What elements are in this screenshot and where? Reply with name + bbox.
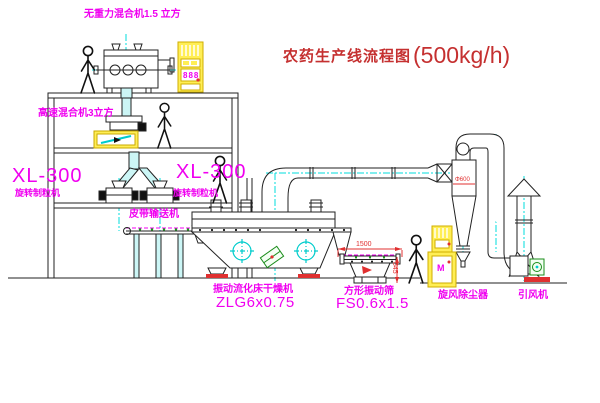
label-granulator-right-model: XL-300	[176, 162, 247, 182]
dim-cyclone-diameter: Φ600	[455, 177, 470, 183]
diagram-canvas: 农药生产线流程图 (500kg/h) 无重力混合机1.5 立方 高速混合机3立方…	[0, 0, 600, 403]
cabinet-right-display: M	[437, 264, 446, 273]
label-granulator-left-model: XL-300	[12, 166, 83, 186]
cabinet-top-display: 888	[183, 72, 199, 80]
dim-sieve-length: 1500	[356, 241, 372, 248]
exhaust-stack	[508, 179, 550, 282]
control-cabinet-right	[428, 226, 456, 287]
fluid-bed-dryer	[192, 200, 351, 278]
exhaust-duct	[262, 164, 452, 212]
diagram-title: 农药生产线流程图 (500kg/h)	[283, 42, 510, 69]
label-sieve-model: FS0.6x1.5	[336, 296, 409, 311]
title-text: 农药生产线流程图	[283, 45, 411, 66]
label-cyclone: 旋风除尘器	[438, 291, 488, 301]
label-belt-conveyor: 皮带输送机	[129, 210, 179, 220]
label-granulator-right-name: 旋转制粒机	[173, 189, 218, 198]
control-cabinet-top	[178, 42, 203, 92]
gravity-mixer	[94, 44, 174, 116]
label-fan: 引风机	[518, 291, 548, 301]
granulator-left	[99, 181, 138, 203]
label-gravity-mixer: 无重力混合机1.5 立方	[84, 10, 181, 20]
label-high-speed-mixer: 高速混合机3立方	[38, 109, 114, 119]
high-speed-mixer	[94, 116, 146, 148]
induced-draft-fan	[510, 256, 550, 282]
title-capacity: (500kg/h)	[413, 42, 510, 69]
belt-conveyor	[124, 228, 208, 279]
label-granulator-left-name: 旋转制粒机	[15, 189, 60, 198]
label-dryer-model: ZLG6x0.75	[216, 295, 295, 310]
dim-sieve-height: 545	[391, 262, 398, 274]
